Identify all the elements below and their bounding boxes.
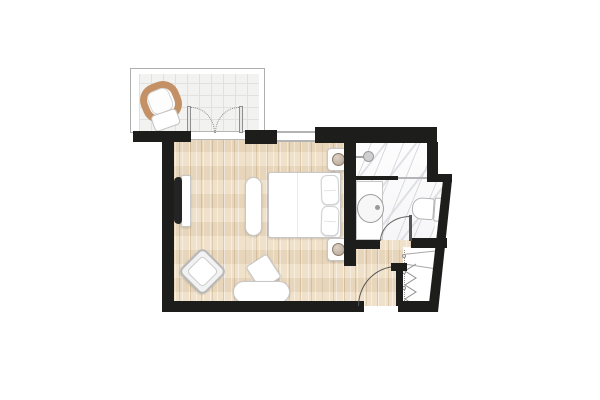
entry-door-leaf xyxy=(396,266,403,306)
wall xyxy=(398,301,432,312)
bed-foot-bench xyxy=(245,177,262,236)
duvet-crease xyxy=(297,173,298,237)
wall xyxy=(162,131,174,312)
wall xyxy=(344,240,380,249)
wall xyxy=(427,142,438,178)
round-sink xyxy=(357,194,384,223)
pillow xyxy=(320,206,339,237)
toilet-bowl xyxy=(411,197,434,220)
shower-head-icon xyxy=(363,151,374,162)
faucet-icon xyxy=(375,205,380,210)
tv-icon xyxy=(174,177,182,224)
wall xyxy=(162,301,364,312)
floor-plan xyxy=(0,0,600,400)
entry-door-jamb xyxy=(391,263,407,271)
shower-partition-wall xyxy=(356,176,398,180)
desk xyxy=(233,281,290,303)
pillow xyxy=(320,175,339,206)
tv-console xyxy=(181,175,191,227)
closet-hook-dot xyxy=(402,254,406,258)
wall xyxy=(315,127,437,143)
french-door-leaf-right xyxy=(239,106,243,133)
armchair-seat xyxy=(186,255,219,288)
bathroom-door-leaf xyxy=(409,215,412,241)
bedroom-window xyxy=(277,131,315,142)
french-door-leaf-left xyxy=(187,106,191,133)
wall xyxy=(245,130,277,144)
